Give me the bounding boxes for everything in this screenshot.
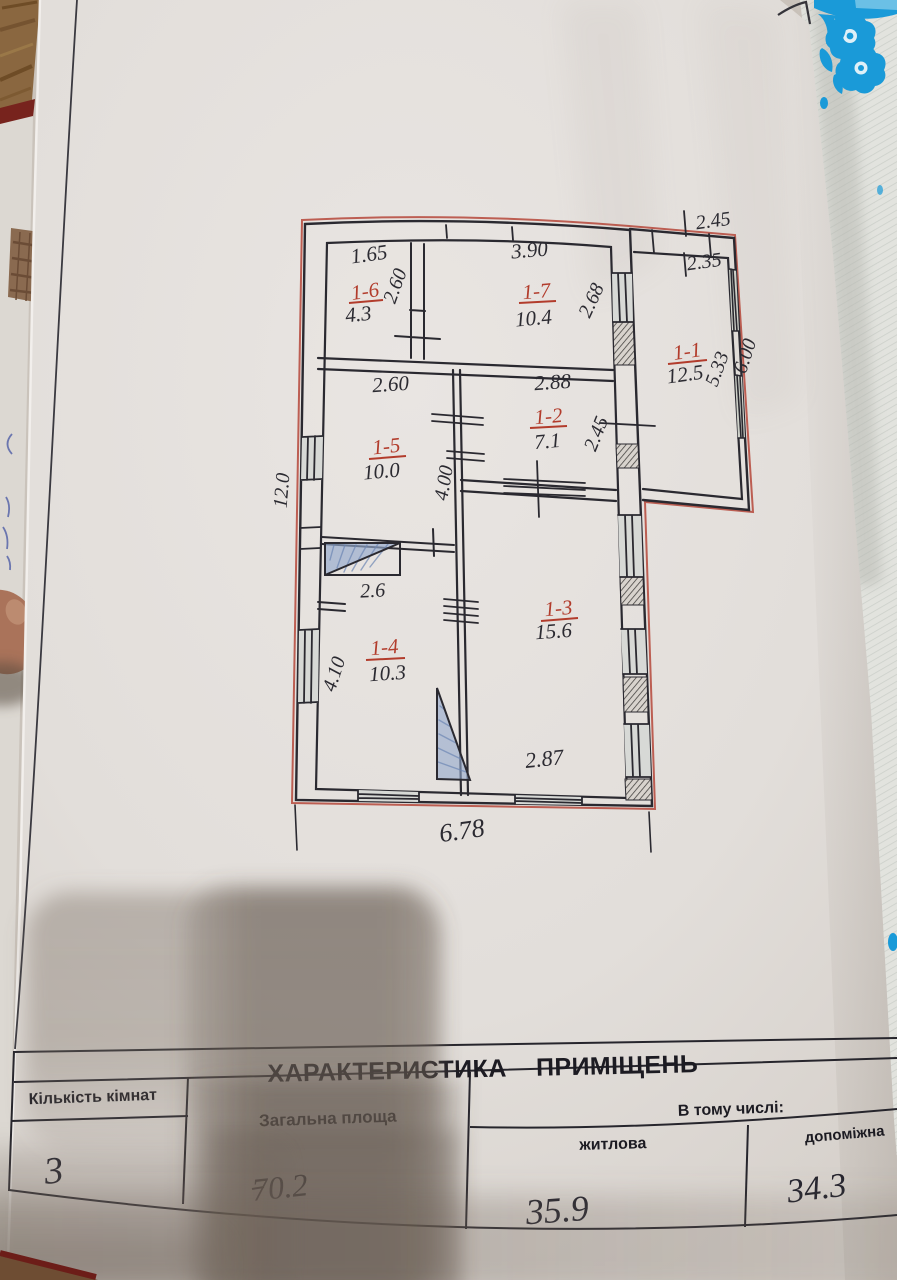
- svg-text:12.5: 12.5: [665, 360, 705, 389]
- svg-text:1.65: 1.65: [349, 240, 389, 269]
- svg-text:1-4: 1-4: [369, 634, 399, 660]
- svg-text:1-5: 1-5: [371, 433, 401, 460]
- svg-text:1-7: 1-7: [521, 278, 552, 304]
- svg-text:15.6: 15.6: [534, 618, 573, 645]
- svg-text:10.3: 10.3: [368, 660, 406, 687]
- svg-text:2.88: 2.88: [533, 369, 572, 396]
- svg-text:1-2: 1-2: [533, 403, 563, 429]
- svg-text:2.87: 2.87: [524, 744, 566, 773]
- svg-text:12.0: 12.0: [270, 472, 295, 509]
- svg-text:10.0: 10.0: [362, 457, 401, 484]
- svg-text:3.90: 3.90: [509, 236, 549, 263]
- svg-text:2.60: 2.60: [371, 371, 410, 398]
- svg-text:2.6: 2.6: [360, 579, 386, 602]
- svg-text:10.4: 10.4: [514, 304, 553, 331]
- svg-text:4.3: 4.3: [344, 301, 373, 328]
- svg-text:житлова: житлова: [578, 1135, 647, 1154]
- svg-text:7.1: 7.1: [533, 428, 561, 454]
